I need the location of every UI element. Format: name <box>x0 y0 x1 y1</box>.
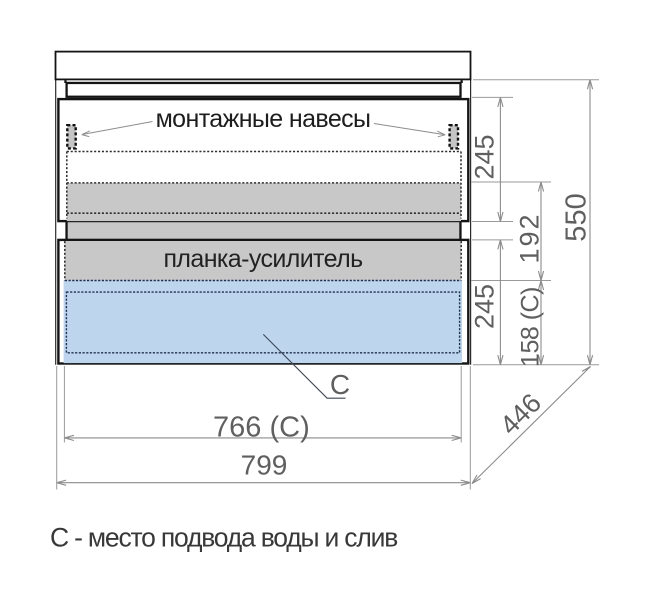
svg-text:766 (C): 766 (C) <box>213 411 310 443</box>
svg-text:245: 245 <box>470 284 500 329</box>
svg-text:245: 245 <box>470 134 500 179</box>
svg-text:550: 550 <box>561 193 593 241</box>
svg-text:158 (C): 158 (C) <box>517 287 545 367</box>
svg-text:799: 799 <box>241 449 288 480</box>
svg-text:C: C <box>330 369 350 400</box>
svg-text:С - место подвода воды и слив: С - место подвода воды и слив <box>50 523 397 553</box>
svg-text:монтажные навесы: монтажные навесы <box>156 105 371 133</box>
svg-text:планка-усилитель: планка-усилитель <box>163 245 362 273</box>
svg-text:192: 192 <box>515 212 545 263</box>
